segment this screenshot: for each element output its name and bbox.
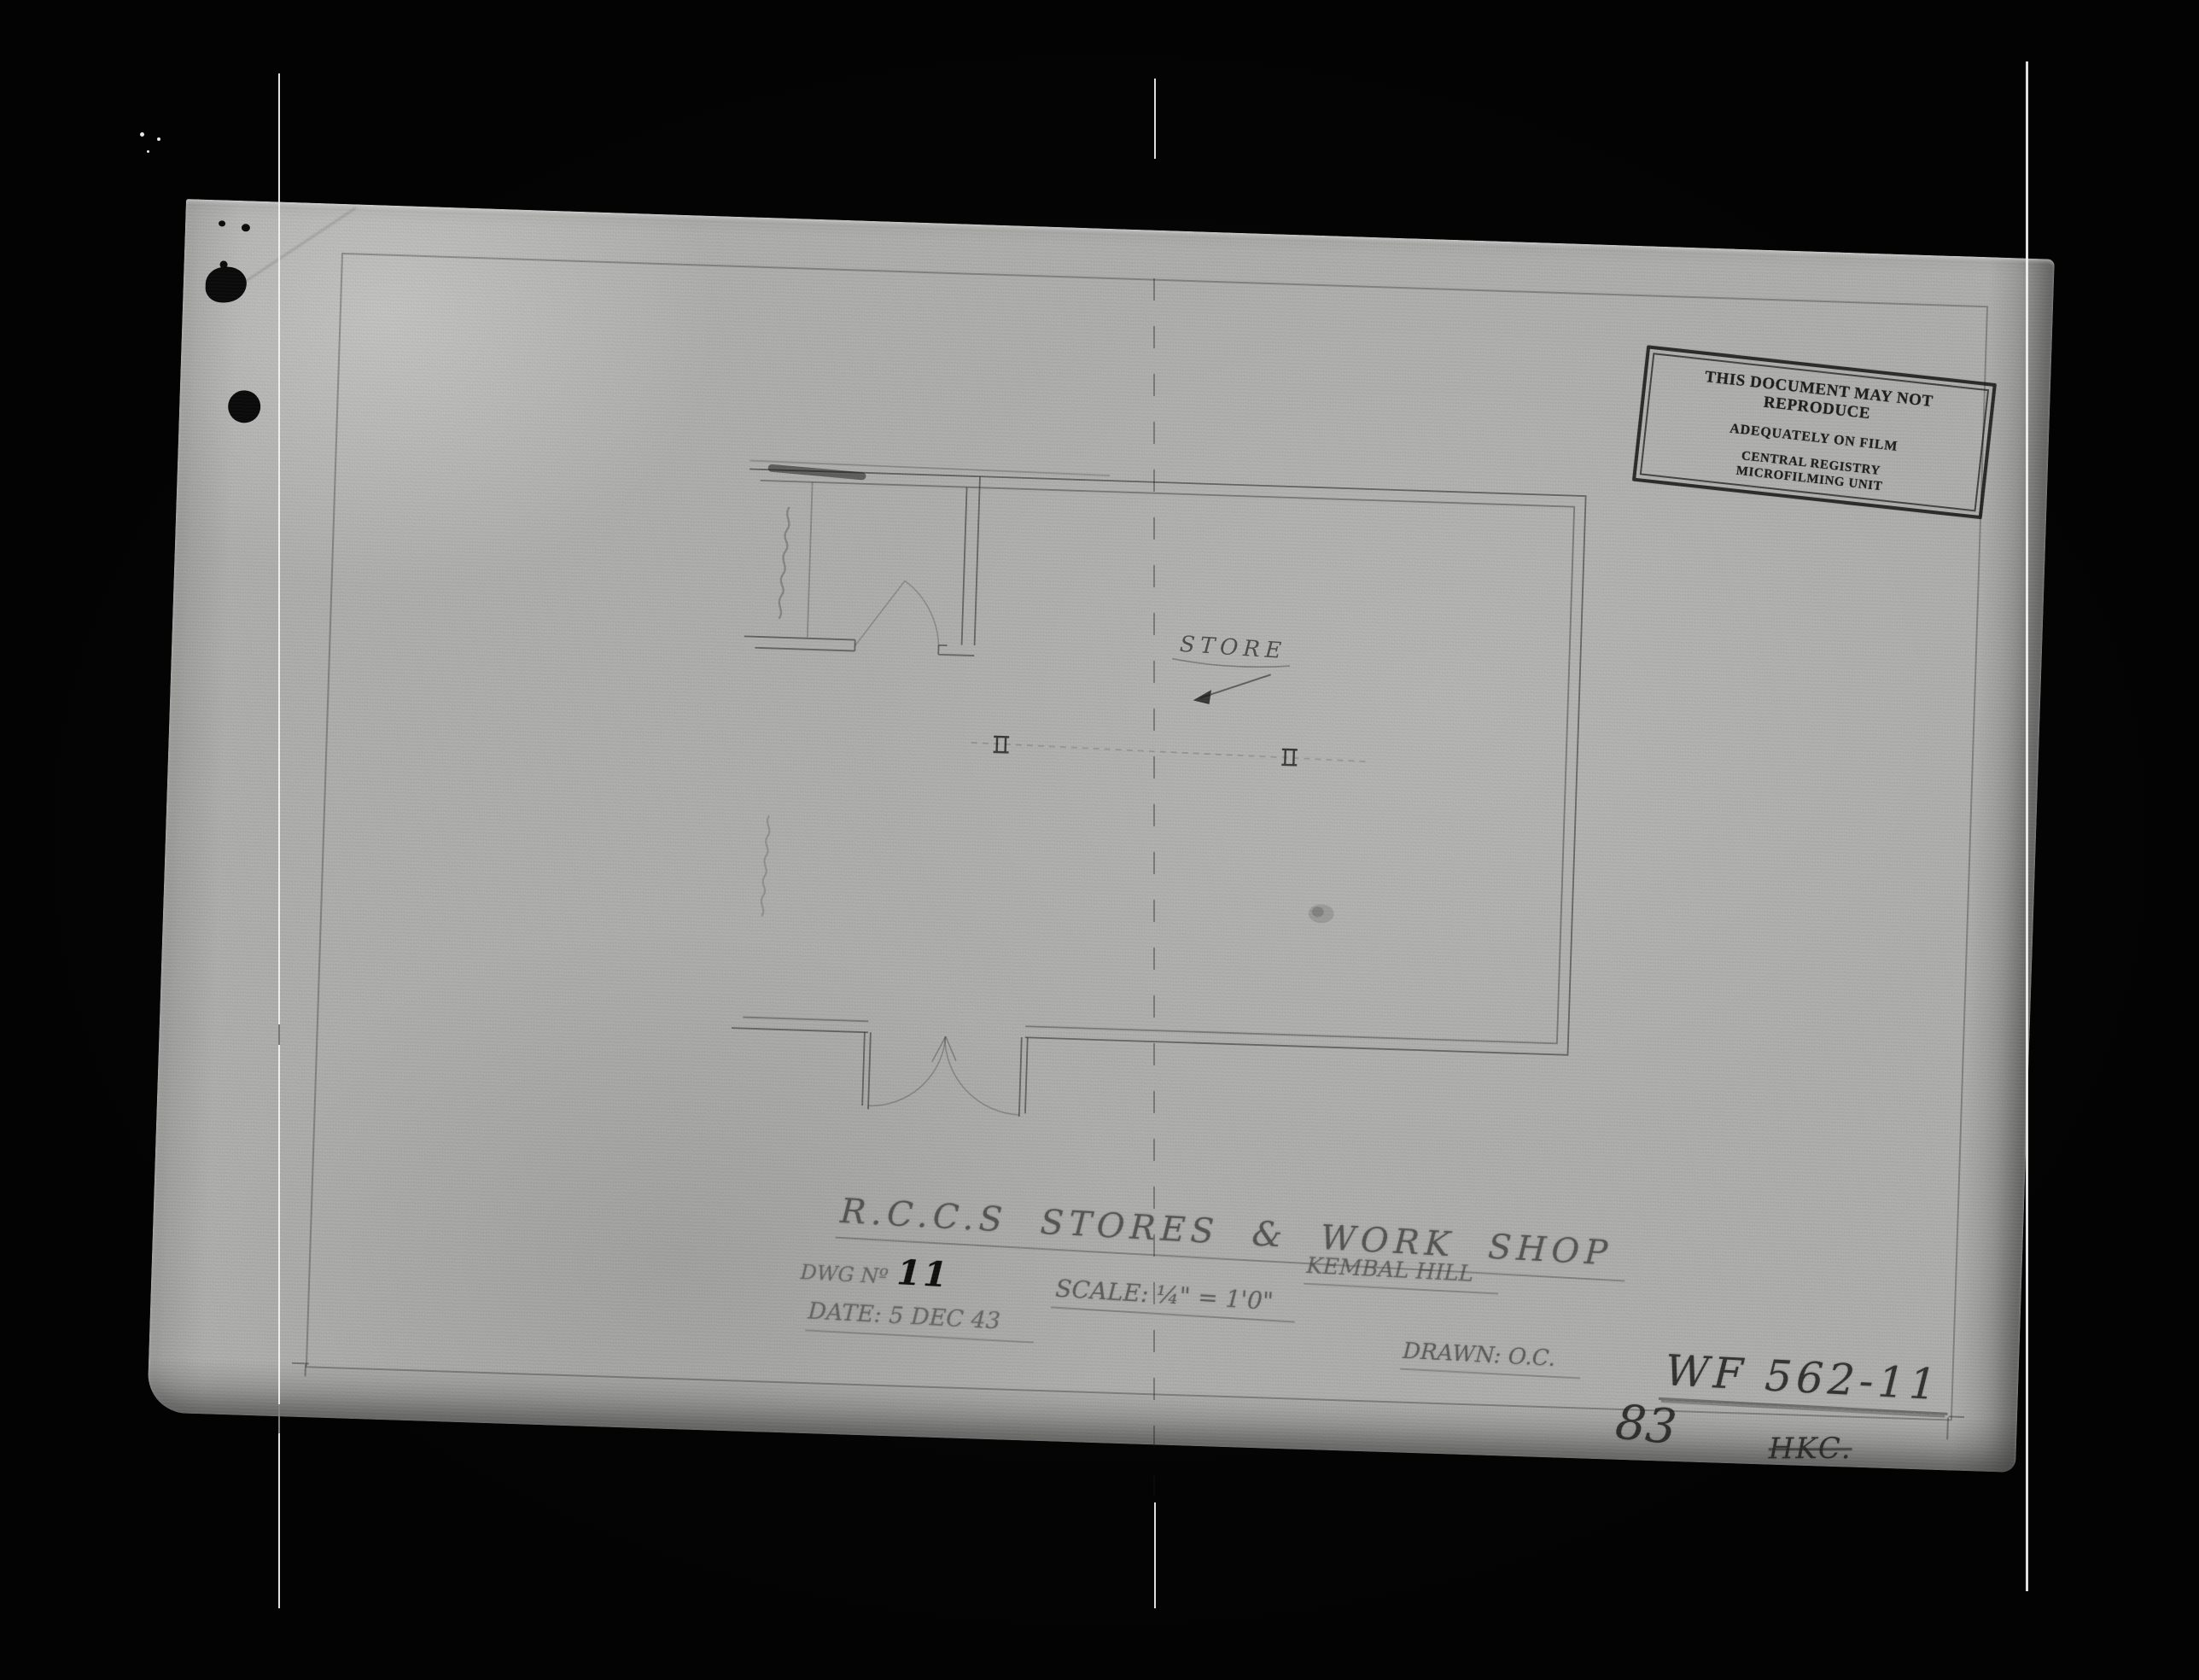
- dust-speck: [147, 150, 149, 153]
- film-scratch-right: [2026, 61, 2028, 1591]
- film-scratch-left-dark-dash: [278, 1404, 280, 1433]
- film-scratch-middle: [1153, 275, 1155, 1496]
- punch-hole-mark: [228, 390, 261, 423]
- store-arrow: [1200, 673, 1271, 701]
- floor-plan: STORE: [703, 446, 1664, 1167]
- border-overshoot-bl-h: [292, 1362, 309, 1365]
- illegible-vertical-annotation: [761, 815, 770, 916]
- clerk-initials: HKC.: [1769, 1432, 1852, 1466]
- ink-blob: [242, 224, 250, 231]
- drawing-number-label: DWG Nº: [800, 1260, 889, 1288]
- film-scratch-left: [278, 73, 280, 1608]
- ink-blob: [219, 220, 225, 226]
- store-room-label: STORE: [1179, 632, 1287, 664]
- film-scratch-middle-top: [1154, 79, 1156, 159]
- film-scratch-left-dark-dash: [278, 1024, 280, 1045]
- document-paper: THIS DOCUMENT MAY NOT REPRODUCE ADEQUATE…: [147, 199, 2055, 1473]
- ink-blob: [205, 266, 247, 304]
- illegible-vertical-annotation: [779, 507, 790, 619]
- store-arrowhead: [1193, 689, 1212, 704]
- drawing-number-value: 11: [896, 1252, 951, 1295]
- annex-door-swing: [903, 580, 941, 646]
- drawing-number: DWG Nº11: [800, 1247, 951, 1295]
- annex-door-leaf: [855, 580, 905, 648]
- dust-speck: [157, 137, 160, 141]
- border-overshoot-bl-v: [305, 1364, 306, 1376]
- double-door-swing: [868, 1034, 1022, 1115]
- border-overshoot-br-v: [1946, 1417, 1949, 1439]
- film-scratch-middle-bottom: [1154, 1502, 1156, 1608]
- frame-number: 83: [1613, 1394, 1679, 1455]
- dust-speck: [140, 132, 144, 137]
